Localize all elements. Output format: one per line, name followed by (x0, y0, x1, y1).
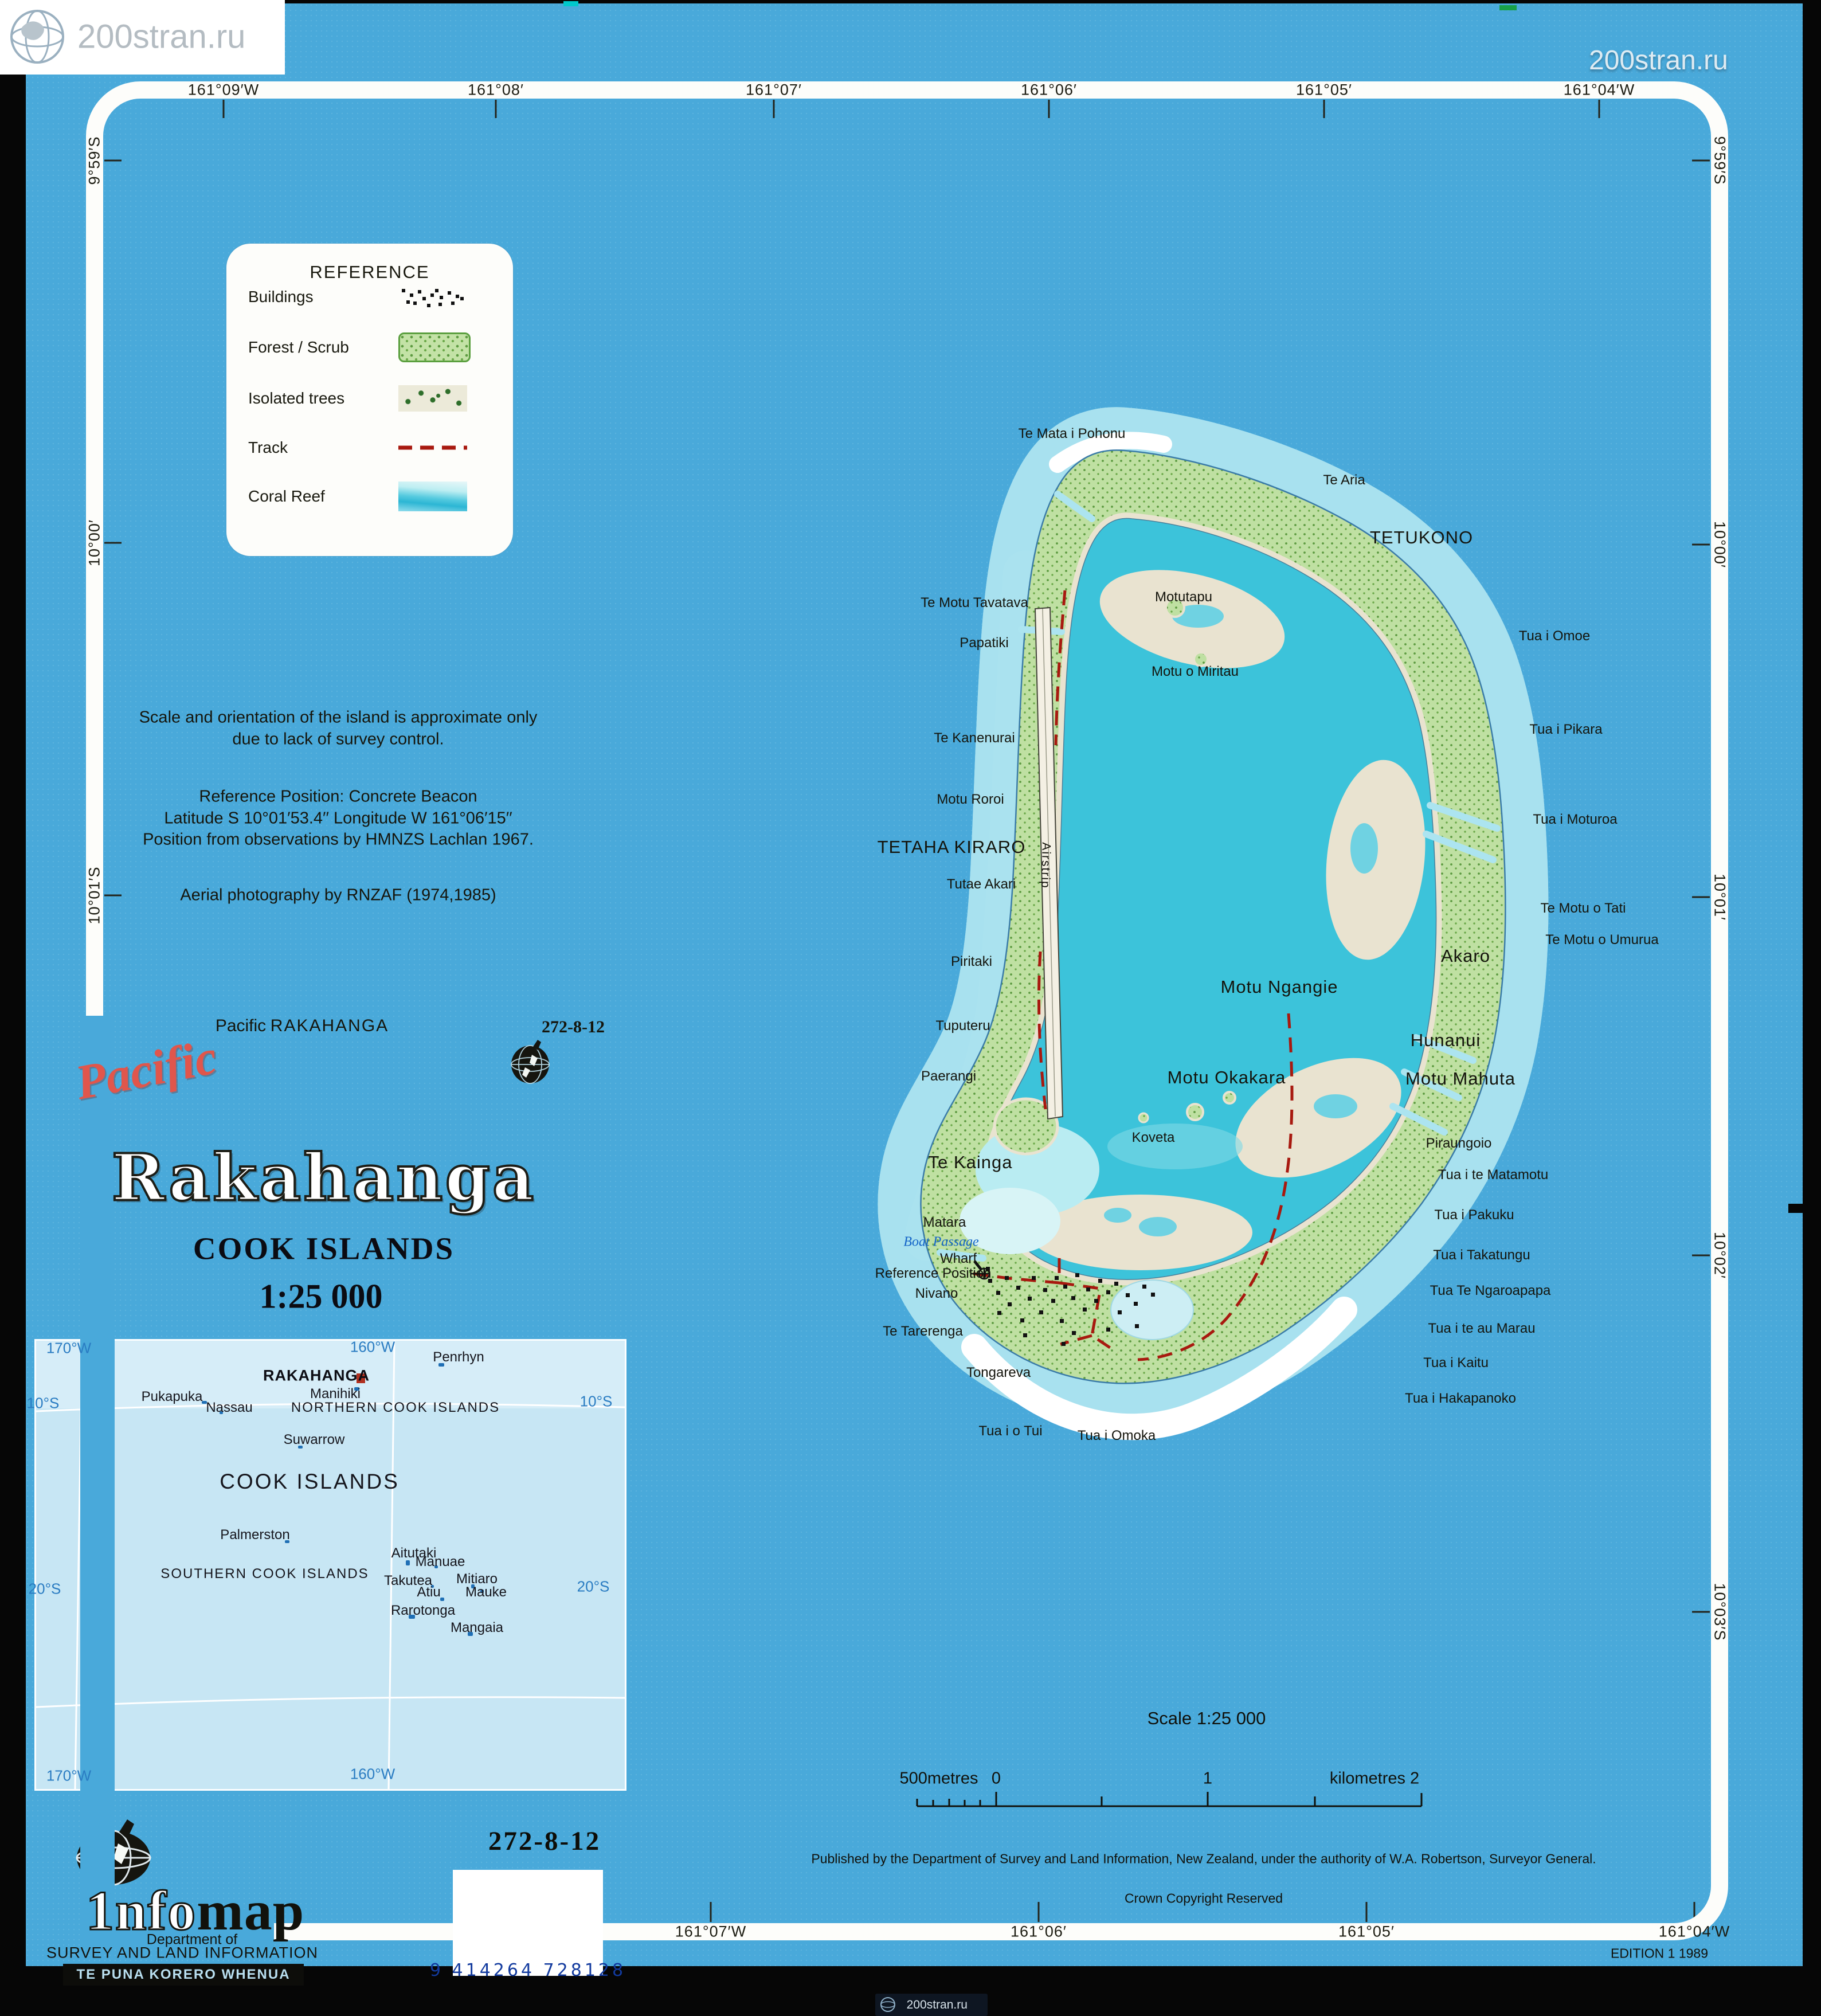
inset-label: Nassau (206, 1400, 252, 1416)
watermark-text: 200stran.ru (77, 18, 245, 56)
inset-label: COOK ISLANDS (220, 1470, 400, 1494)
graticule-label-top: 161°09′W (188, 81, 259, 99)
place-label: TETUKONO (1370, 527, 1473, 548)
place-label: Te Motu Tavatava (921, 595, 1028, 611)
frame-cap-left (86, 999, 103, 1016)
graticule-label-top: 161°07′ (746, 81, 802, 99)
place-label: Te Aria (1323, 472, 1365, 488)
inset-label: 10°S (27, 1395, 60, 1412)
place-label: Hunanui (1411, 1030, 1481, 1051)
place-label: Airstrip (1038, 842, 1052, 889)
graticule-label-left: 10°00′ (86, 519, 104, 566)
scalebar-metres: 500metres (899, 1770, 978, 1788)
legend-panel: REFERENCE BuildingsForest / ScrubIsolate… (226, 244, 513, 556)
place-label: Koveta (1132, 1130, 1175, 1146)
place-label: Motu Ngangie (1220, 977, 1338, 997)
graticule-label-bottom: 161°05′ (1338, 1923, 1395, 1941)
legend-symbol-track (398, 446, 467, 450)
inset-label: 170°W (46, 1767, 91, 1785)
place-label: Papatiki (960, 635, 1008, 651)
registration-mark-cyan (563, 1, 578, 6)
place-label: Motutapu (1155, 589, 1212, 605)
watermark-bottom: 200stran.ru (875, 1994, 988, 2016)
legend-item-trees: Isolated trees (226, 381, 513, 416)
legend-item-label: Isolated trees (248, 389, 344, 408)
inset-label: 160°W (350, 1338, 395, 1356)
scalebar-one: 1 (1203, 1770, 1212, 1788)
graticule-label-bottom: 161°04′W (1659, 1923, 1730, 1941)
inset-label: Atiu (417, 1584, 440, 1600)
inset-label: 20°S (577, 1578, 610, 1596)
note-aerial: Aerial photography by RNZAF (1974,1985) (180, 886, 496, 905)
legend-symbol-forest (398, 332, 471, 362)
sheet-number-bottom: 272-8-12 (488, 1826, 601, 1857)
inset-label: Mangaia (451, 1620, 503, 1636)
legend-item-label: Forest / Scrub (248, 338, 349, 357)
graticule-label-top: 161°08′ (468, 81, 524, 99)
place-label: Motu o Miritau (1152, 664, 1239, 680)
logo-dept-line2: SURVEY AND LAND INFORMATION (46, 1944, 318, 1962)
inset-label: Palmerston (220, 1527, 289, 1543)
inset-label: Pukapuka (142, 1389, 203, 1405)
place-label: Tua i o Tui (978, 1423, 1042, 1439)
place-label: Te Motu o Tati (1541, 901, 1626, 917)
place-label: Reference Position (875, 1266, 992, 1282)
inset-label: 160°W (350, 1766, 395, 1783)
inset-label: Manuae (416, 1554, 465, 1570)
place-label: Te Tarerenga (883, 1324, 963, 1340)
legend-item-label: Track (248, 439, 288, 457)
edge-notch (1788, 1204, 1821, 1213)
graticule-label-right: 10°03′S (1711, 1583, 1729, 1641)
legend-symbol-reef (398, 482, 467, 511)
place-label: Wharf (940, 1251, 977, 1267)
graticule-label-bottom: 161°06′ (1011, 1923, 1067, 1941)
inset-label: 10°S (580, 1393, 613, 1411)
watermark-bottom-text: 200stran.ru (907, 1998, 968, 2012)
place-label: Tongareva (966, 1365, 1031, 1381)
place-label: Tua i Kaitu (1423, 1355, 1489, 1371)
map-subtitle: COOK ISLANDS (193, 1231, 455, 1267)
note-ref-3: Position from observations by HMNZS Lach… (143, 831, 534, 850)
scalebar-km: kilometres 2 (1330, 1770, 1419, 1788)
place-label: Te Mata i Pohonu (1019, 426, 1126, 442)
copyright-note: Crown Copyright Reserved (1125, 1891, 1283, 1907)
place-label: Tuputeru (935, 1018, 990, 1034)
note-ref-2: Latitude S 10°01′53.4′′ Longitude W 161°… (164, 809, 512, 828)
inset-label: Penrhyn (433, 1349, 484, 1365)
scalebar-title: Scale 1:25 000 (1148, 1708, 1266, 1729)
place-label: Te Motu o Umurua (1545, 932, 1658, 948)
place-label: Tua Te Ngaroapapa (1430, 1283, 1551, 1299)
place-label: Tua i Pikara (1529, 722, 1602, 738)
place-label: Tua i Omoka (1078, 1428, 1156, 1444)
place-label: Boat Passage (903, 1235, 978, 1250)
frame-gap-left (80, 1016, 115, 1927)
legend-item-buildings: Buildings (226, 280, 513, 314)
place-label: Motu Roroi (937, 792, 1004, 808)
place-label: Akaro (1441, 946, 1490, 966)
map-scan-page: { "watermark": {"text": "200stran.ru"}, … (0, 0, 1821, 2016)
barcode-digits: 9 414264 728128 (430, 1960, 626, 1980)
graticule-label-right: 9°59′S (1711, 136, 1729, 185)
graticule-label-left: 10°01′S (86, 867, 104, 925)
legend-item-reef: Coral Reef (226, 479, 513, 514)
inset-label: NORTHERN COOK ISLANDS (291, 1400, 500, 1416)
inset-label: Rarotonga (391, 1603, 455, 1619)
graticule-label-right: 10°02′ (1711, 1232, 1729, 1279)
note-scale-2: due to lack of survey control. (232, 730, 444, 749)
legend-symbol-trees (398, 385, 467, 412)
legend-symbol-buildings (398, 284, 467, 310)
registration-mark-green (1499, 5, 1517, 10)
place-label: Tua i Moturoa (1533, 812, 1617, 828)
place-label: Tua i Omoe (1519, 628, 1591, 644)
maori-name-bar: TE PUNA KORERO WHENUA (63, 1964, 304, 1986)
inset-label: 170°W (46, 1340, 91, 1357)
place-label: Matara (923, 1215, 966, 1231)
edition-note: EDITION 1 1989 (1611, 1946, 1708, 1962)
inset-label: Mauke (465, 1584, 507, 1600)
graticule-label-top: 161°04′W (1564, 81, 1635, 99)
map-title: Rakahanga (112, 1141, 536, 1216)
place-label: Paerangi (921, 1068, 976, 1085)
place-label: Tua i te Matamotu (1438, 1167, 1549, 1183)
place-label: Tutae Akari (947, 876, 1016, 892)
place-label: Tua i Hakapanoko (1405, 1391, 1516, 1407)
place-label: Tua i Pakuku (1434, 1207, 1514, 1223)
barcode: 9 414264 728128 (453, 1870, 603, 1976)
place-label: Nivano (915, 1286, 958, 1302)
note-scale-1: Scale and orientation of the island is a… (139, 708, 538, 727)
scalebar-zero: 0 (992, 1770, 1001, 1788)
watermark-topleft: 200stran.ru (0, 0, 285, 75)
note-ref-1: Reference Position: Concrete Beacon (199, 788, 477, 807)
graticule-label-top: 161°06′ (1021, 81, 1077, 99)
watermark-bottom-globe (879, 1995, 898, 2015)
graticule-label-right: 10°01′ (1711, 874, 1729, 921)
watermark-topright: 200stran.ru (1589, 45, 1728, 76)
place-label: Tua i Takatungu (1433, 1247, 1530, 1263)
infomap-wordmark: 1nfomap (86, 1883, 304, 1939)
place-label: Motu Mahuta (1405, 1068, 1515, 1089)
graticule-label-top: 161°05′ (1296, 81, 1352, 99)
place-label: Motu Okakara (1168, 1067, 1286, 1088)
inset-label: SOUTHERN COOK ISLANDS (160, 1566, 369, 1582)
legend-item-track: Track (226, 430, 513, 465)
map-scale: 1:25 000 (260, 1277, 383, 1317)
inset-label: Suwarrow (284, 1432, 345, 1448)
watermark-globe-icon (0, 0, 75, 75)
place-label: Piritaki (951, 954, 992, 970)
graticule-label-right: 10°00′ (1711, 521, 1729, 568)
inset-label: RAKAHANGA (263, 1367, 370, 1385)
publisher-note: Published by the Department of Survey an… (811, 1851, 1596, 1867)
place-label: Piraungoio (1426, 1136, 1492, 1152)
inset-label: 20°S (29, 1580, 61, 1598)
maori-name: TE PUNA KORERO WHENUA (76, 1967, 290, 1983)
place-label: Te Kainga (929, 1152, 1013, 1173)
header-name: RAKAHANGA (271, 1016, 389, 1036)
graticule-label-bottom: 161°07′W (675, 1923, 746, 1941)
legend-item-label: Coral Reef (248, 487, 325, 506)
place-label: TETAHA KIRARO (878, 837, 1026, 858)
place-label: Tua i te au Marau (1428, 1321, 1535, 1337)
place-label: Te Kanenurai (934, 730, 1015, 746)
legend-item-label: Buildings (248, 288, 314, 306)
graticule-label-left: 9°59′S (86, 136, 104, 185)
sheet-number-top: 272-8-12 (542, 1017, 605, 1037)
legend-item-forest: Forest / Scrub (226, 330, 513, 365)
